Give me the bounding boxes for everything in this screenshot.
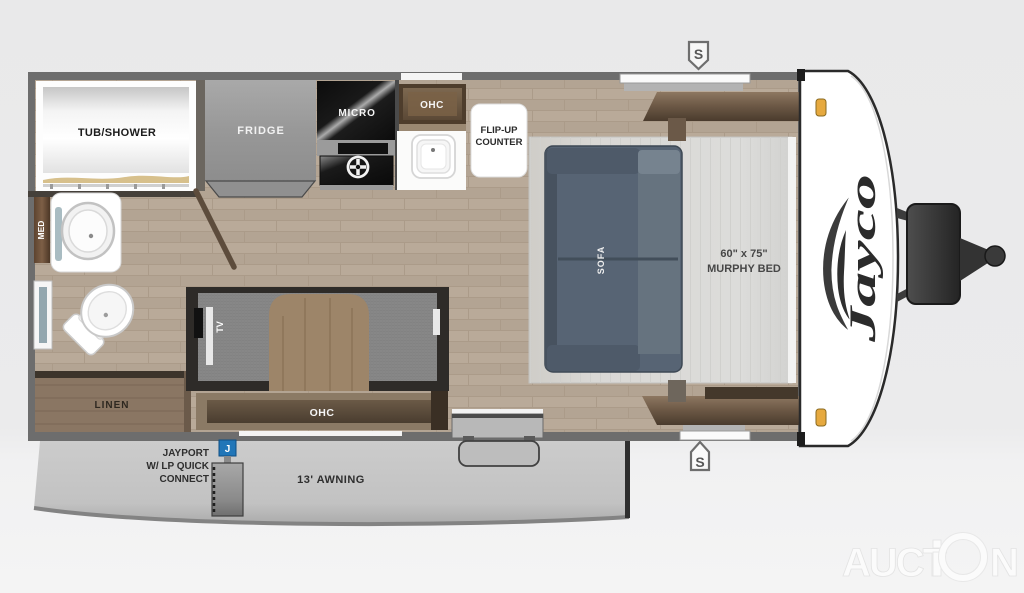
- svg-text:S: S: [694, 46, 703, 62]
- svg-text:SOFA: SOFA: [596, 246, 606, 275]
- svg-text:S: S: [695, 454, 704, 470]
- svg-text:J: J: [225, 444, 231, 455]
- svg-text:COUNTER: COUNTER: [476, 137, 523, 148]
- svg-text:Jayco: Jayco: [843, 174, 884, 344]
- svg-text:OHC: OHC: [420, 100, 444, 111]
- svg-text:13' AWNING: 13' AWNING: [297, 474, 365, 486]
- svg-text:FRIDGE: FRIDGE: [237, 125, 285, 137]
- svg-text:JAYPORT: JAYPORT: [163, 448, 209, 459]
- svg-text:N: N: [990, 541, 1019, 585]
- svg-text:FLIP-UP: FLIP-UP: [481, 125, 519, 136]
- svg-text:W/ LP QUICK: W/ LP QUICK: [146, 461, 209, 472]
- svg-text:LINEN: LINEN: [95, 400, 130, 411]
- svg-text:MURPHY BED: MURPHY BED: [707, 263, 781, 275]
- svg-text:AUCT: AUCT: [842, 541, 947, 585]
- svg-text:MED: MED: [36, 221, 46, 240]
- svg-text:TV: TV: [215, 321, 225, 333]
- svg-text:MICRO: MICRO: [338, 108, 375, 119]
- svg-text:OHC: OHC: [310, 407, 335, 419]
- svg-text:60" x 75": 60" x 75": [720, 248, 767, 260]
- svg-text:TUB/SHOWER: TUB/SHOWER: [78, 127, 156, 139]
- svg-text:CONNECT: CONNECT: [160, 474, 209, 485]
